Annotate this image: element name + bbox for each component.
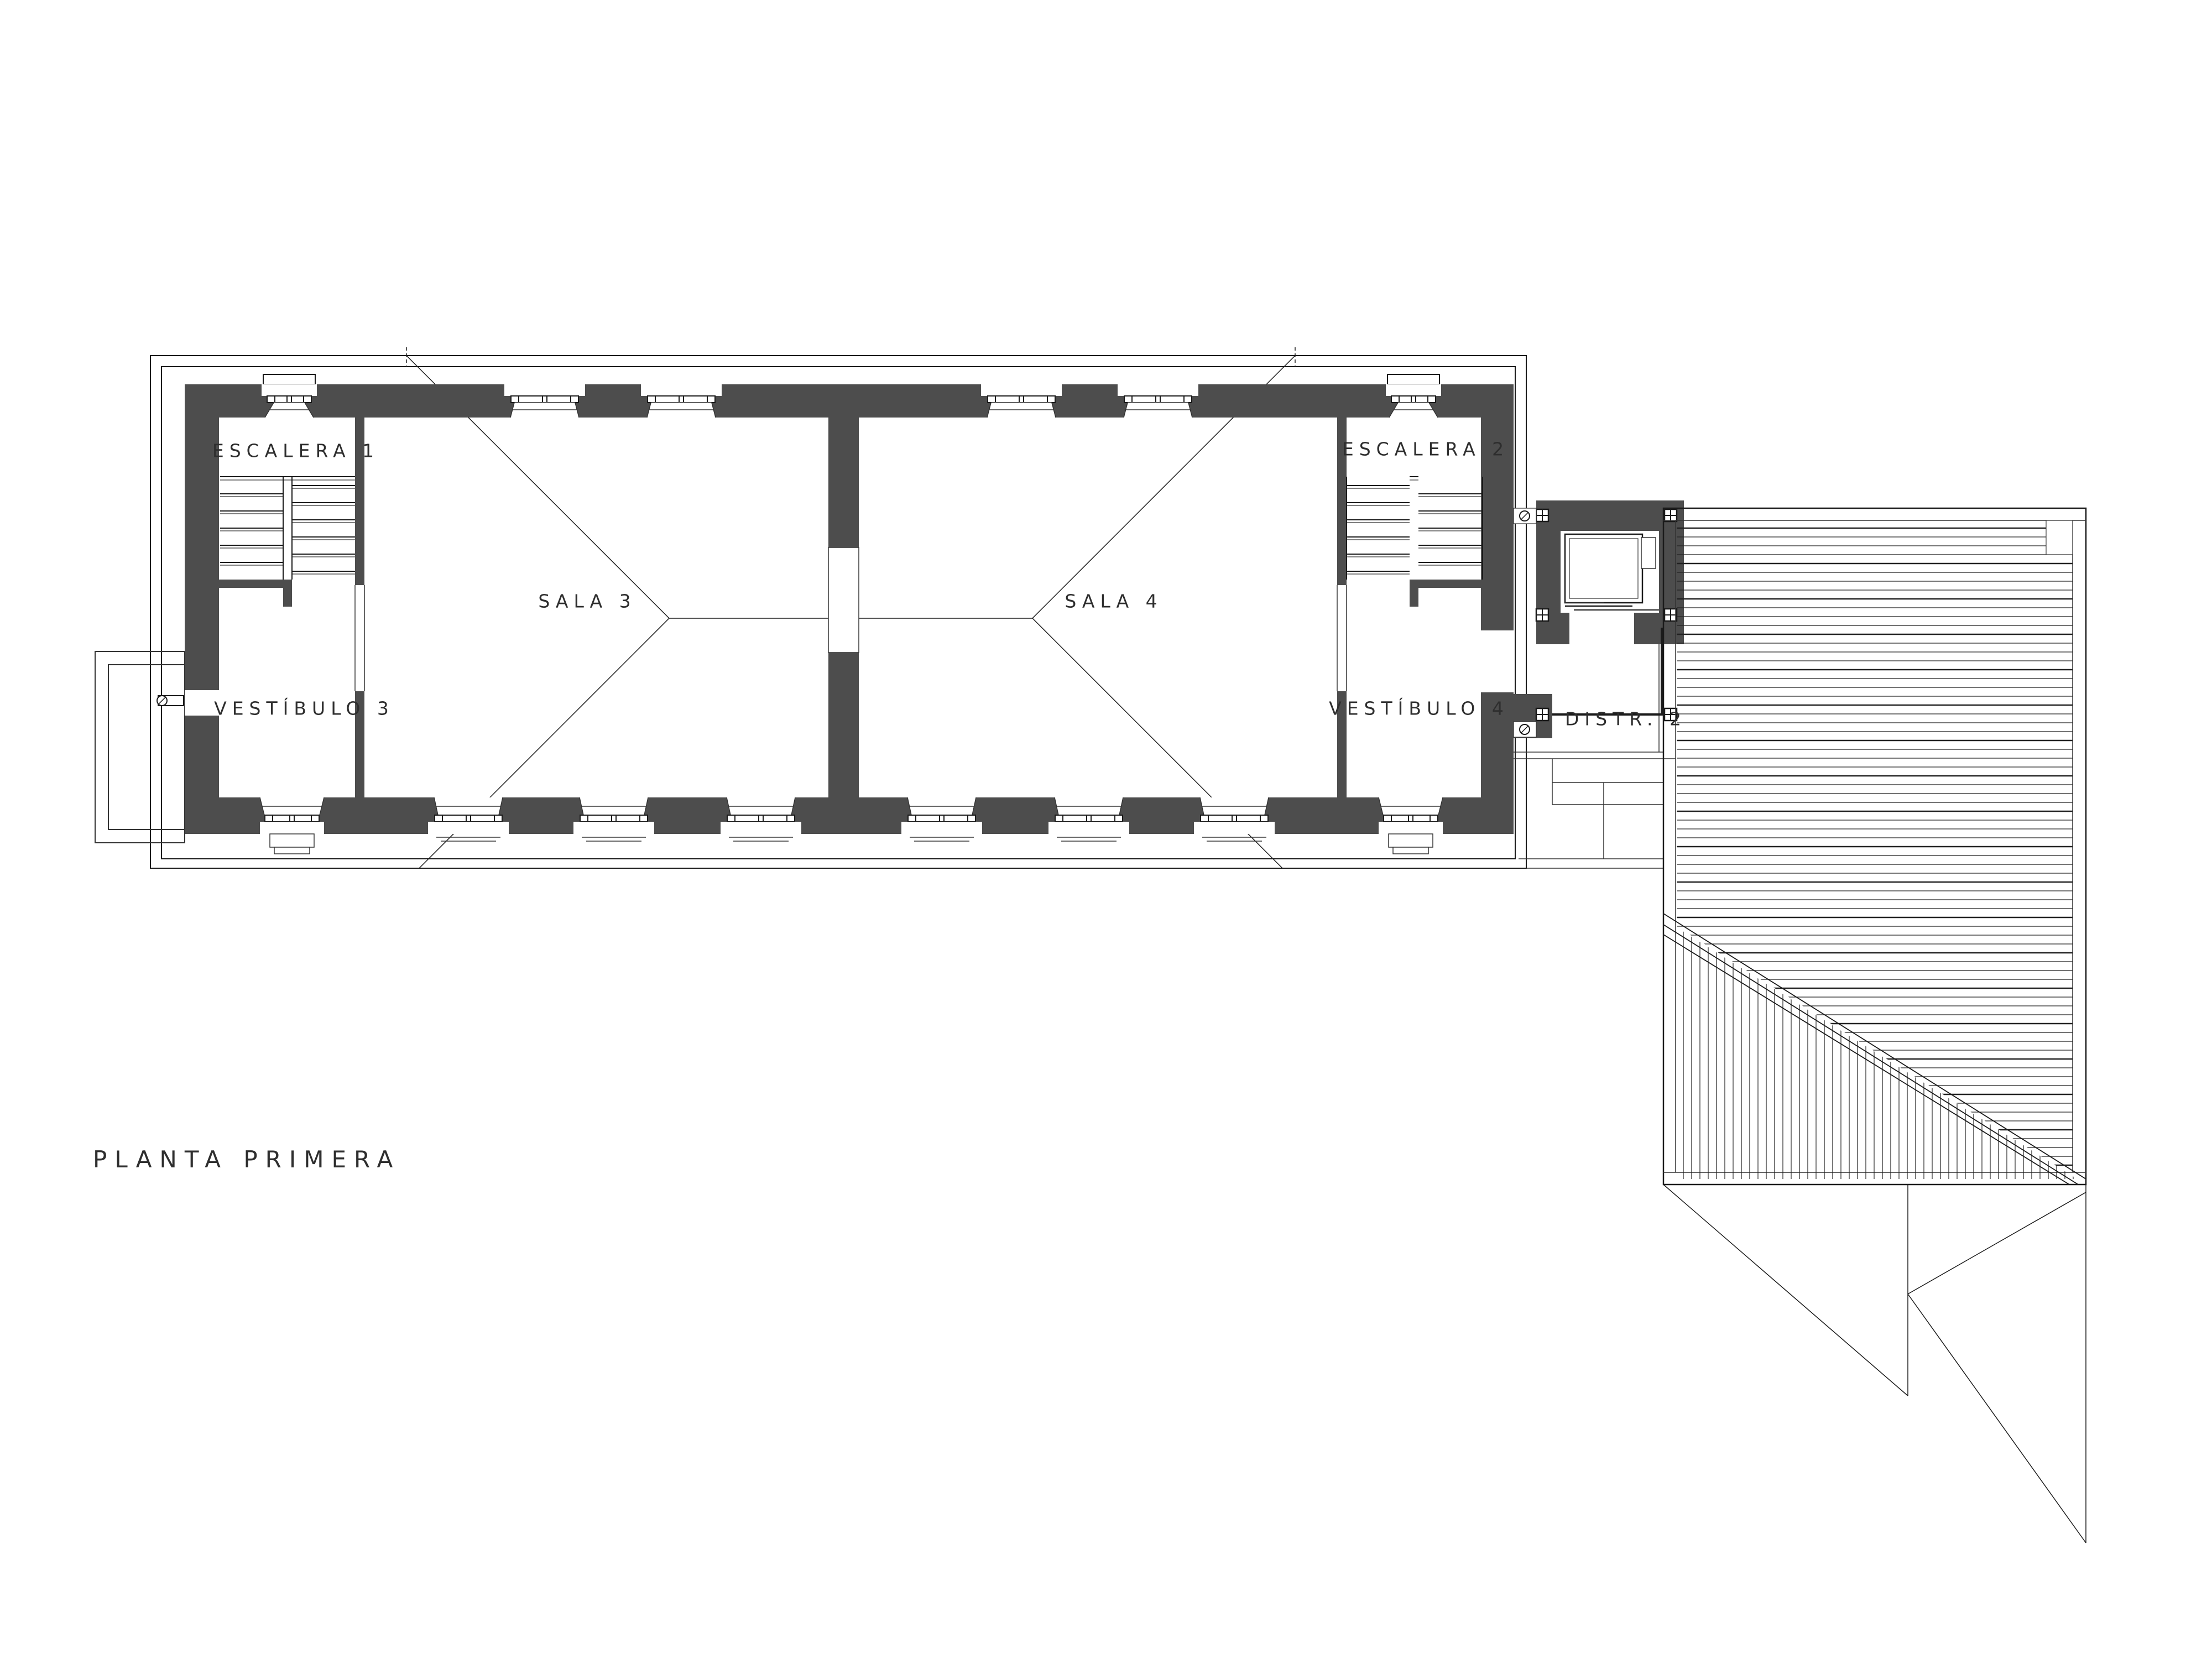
column-marker-icon <box>1514 508 1536 524</box>
room-label-sala-4: SALA 4 <box>1065 591 1162 612</box>
window <box>641 384 722 418</box>
exterior-door <box>260 797 324 854</box>
window <box>901 797 982 841</box>
exterior-door <box>1379 797 1443 854</box>
stair-window <box>1386 374 1441 418</box>
window <box>1118 384 1198 418</box>
column-marker-icon <box>1514 722 1536 737</box>
window <box>1194 797 1275 841</box>
side-porch-outline <box>95 651 185 843</box>
floor-plan-drawing <box>0 0 2212 1659</box>
roof-horizontal-sheeting <box>1677 528 2073 1165</box>
window <box>428 797 509 841</box>
steel-column-icon <box>1536 509 1548 521</box>
window <box>573 797 654 841</box>
room-label-escalera-2: ESCALERA 2 <box>1342 439 1509 460</box>
stair-window <box>262 374 317 418</box>
steel-column-icon <box>1536 609 1548 621</box>
stair-escalera-2 <box>1347 477 1483 580</box>
floor-plan-canvas: ESCALERA 1 ESCALERA 2 SALA 3 SALA 4 VEST… <box>0 0 2212 1659</box>
room-label-vestibulo-3: VESTÍBULO 3 <box>214 698 394 719</box>
adjacent-roof-plan <box>1663 508 2086 1185</box>
room-label-distr-2: DISTR. 2 <box>1565 708 1687 730</box>
steel-column-icon <box>1536 708 1548 721</box>
room-label-vestibulo-4: VESTÍBULO 4 <box>1329 698 1509 719</box>
window <box>504 384 585 418</box>
window <box>1048 797 1129 841</box>
window <box>981 384 1062 418</box>
window <box>721 797 801 841</box>
left-wall-door <box>157 690 219 716</box>
stair-escalera-1 <box>220 477 355 580</box>
room-label-escalera-1: ESCALERA 1 <box>212 440 379 462</box>
plan-title: PLANTA PRIMERA <box>93 1146 400 1173</box>
lower-roof-hip-lines <box>1663 1185 2086 1543</box>
steel-column-icon <box>1665 609 1677 621</box>
steel-column-icon <box>1665 509 1677 521</box>
room-label-sala-3: SALA 3 <box>538 591 636 612</box>
distr-landing-lines <box>1514 628 1676 868</box>
